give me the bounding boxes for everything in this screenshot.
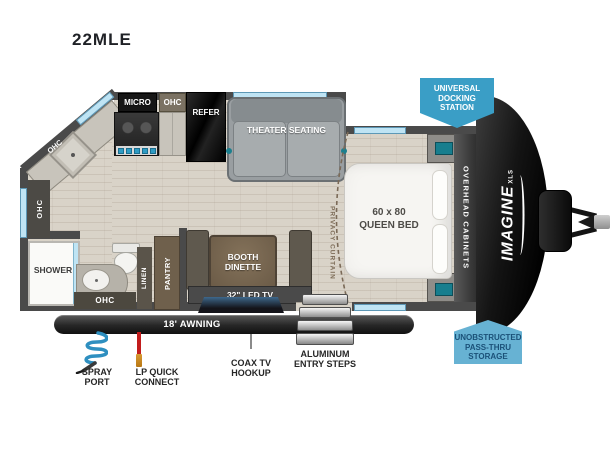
bath-sink-drain [95,279,98,282]
lp-line2: CONNECT [126,377,188,387]
step [302,294,348,305]
coax-line-icon [250,334,252,349]
stove-knob [118,148,124,154]
entry-steps-label: ALUMINUM ENTRY STEPS [294,349,356,369]
entry-steps [296,294,354,348]
privacy-curtain-label-wrap: PRIVACY CURTAIN [325,175,339,310]
dinette-bench-left [186,230,209,290]
dinette-label-1: BOOTH [228,252,259,262]
corner-sink-drain [71,153,75,157]
stove-knob [126,148,132,154]
stove-knob [150,148,156,154]
lamp [435,283,453,296]
step [297,320,353,331]
propane-tank-cover [538,190,572,252]
floorplan-22mle: 22MLE OHC MICRO OHC REFER THEA [0,0,614,460]
storage-line3: STORAGE [454,352,522,362]
shower-label: SHOWER [28,265,78,275]
microwave: MICRO [118,93,157,112]
pantry: PANTRY [154,236,180,310]
docking-line1: UNIVERSAL [420,84,494,94]
theater-backrest [231,99,342,123]
pillow [432,170,448,220]
linen-label: LINEN [141,267,148,289]
dinette-label-2: DINETTE [225,262,261,272]
step [299,307,351,318]
lp-line-icon [137,332,141,354]
spray-port-line2: PORT [72,377,122,387]
cupholder-accent [226,148,232,154]
micro-label: MICRO [124,98,151,107]
privacy-curtain-label: PRIVACY CURTAIN [329,206,336,280]
kitchen-ohc: OHC [159,93,186,112]
overhead-cabinets: OVERHEAD CABINETS [454,134,478,302]
lp-line-tip [136,354,142,367]
refrigerator: REFER [186,92,226,162]
docking-line3: STATION [420,103,494,113]
step [296,333,354,345]
coax-hookup-label: COAX TV HOOKUP [224,358,278,378]
brand-logo: IMAGINEXLS [500,169,525,261]
coax-line2: HOOKUP [224,368,278,378]
awning-label: 18' AWNING [146,320,238,330]
spray-port-label: SPRAY PORT [72,367,122,387]
stove-knob [142,148,148,154]
passthru-storage-badge: UNOBSTRUCTED PASS-THRU STORAGE [454,320,522,364]
pantry-label: PANTRY [163,257,172,290]
left-ohc-cabinet: OHC [28,180,50,238]
brand-swoosh [516,175,525,255]
refer-label: REFER [187,109,225,117]
storage-line1: UNOBSTRUCTED [454,333,522,343]
spray-port-line1: SPRAY [72,367,122,377]
lp-quick-connect-label: LP QUICK CONNECT [126,367,188,387]
brand-sub: XLS [509,169,515,184]
docking-line2: DOCKING [420,94,494,104]
tv-screen [198,297,284,313]
left-ohc-label: OHC [35,199,44,219]
lp-line1: LP QUICK [126,367,188,377]
stove-knob [134,148,140,154]
kitchen-counter [159,112,186,156]
kitchen-ohc-label: OHC [164,98,182,107]
brand-name: IMAGINE [500,186,517,261]
hitch-coupler-tip [594,215,610,229]
dinette-bench-right [289,230,312,290]
steps-line2: ENTRY STEPS [294,359,356,369]
steps-line1: ALUMINUM [294,349,356,359]
linen-cabinet: LINEN [137,247,152,309]
lamp [435,142,453,155]
bath-ohc-label: OHC [95,296,114,305]
dinette-table: BOOTH DINETTE [209,235,277,289]
stove-knob-strip [116,146,157,155]
window-left [20,188,27,238]
bath-ohc: OHC [74,292,136,309]
overhead-cabinets-label: OVERHEAD CABINETS [462,166,471,269]
page-title: 22MLE [72,30,132,50]
coax-line1: COAX TV [224,358,278,368]
storage-line2: PASS-THRU [454,343,522,353]
pillow [432,224,448,274]
